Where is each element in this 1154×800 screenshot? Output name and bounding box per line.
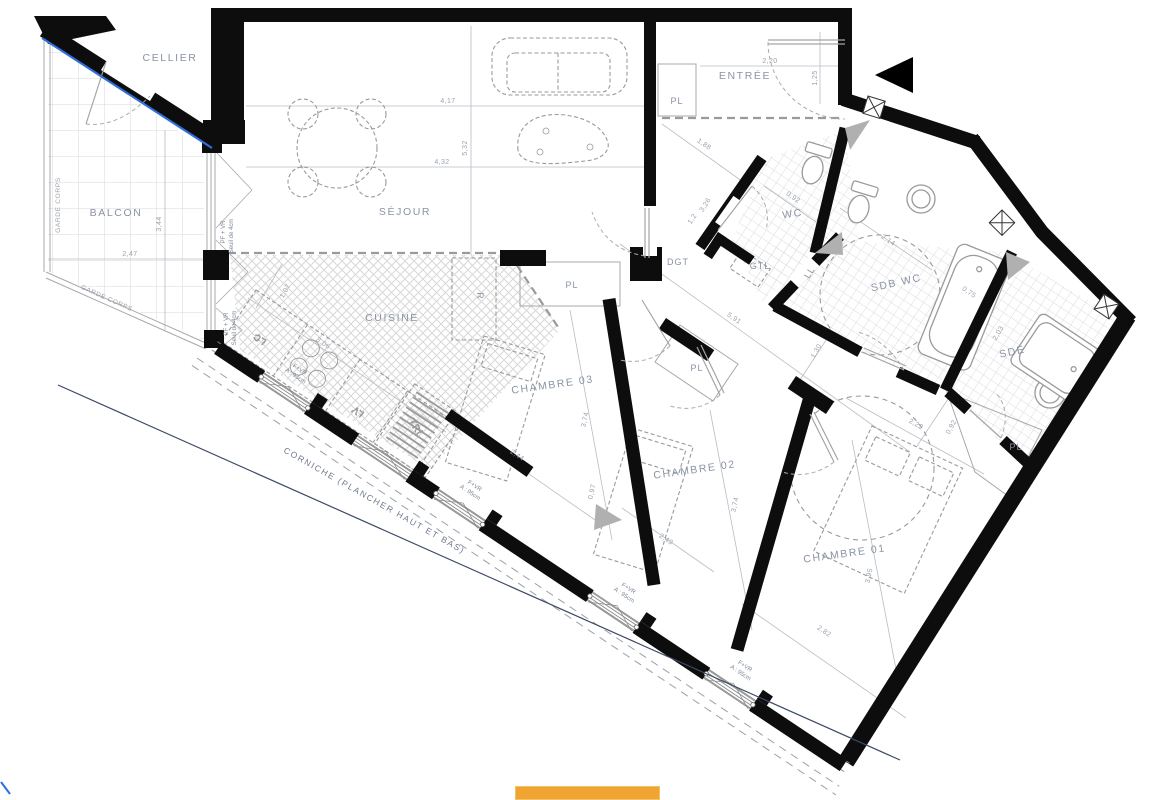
- dim-ch1-d: 2,22: [907, 418, 924, 432]
- room-label-dgt: DGT: [667, 257, 689, 267]
- room-label-cuisine: CUISINE: [365, 312, 419, 324]
- pfvr-label-1: PF + VR: [221, 220, 227, 244]
- room-label-cellier: CELLIER: [143, 52, 198, 64]
- garde-corps-left: GARDE CORPS: [55, 177, 62, 233]
- room-label-chambre-03: CHAMBRE 03: [511, 373, 595, 396]
- kitchen-tiling: [230, 255, 560, 470]
- dim-ch2-h: 3,74: [731, 497, 741, 513]
- closet-label-entree: PL: [670, 96, 683, 106]
- room-label-chambre-01: CHAMBRE 01: [803, 542, 887, 565]
- dim-ch1-w: 2,82: [816, 625, 833, 639]
- dim-wc-d2: 3,26: [699, 197, 713, 214]
- room-label-gtl: GTL: [750, 261, 771, 271]
- dining-table: [297, 108, 377, 188]
- dim-ch2-w: 2,49: [658, 533, 675, 547]
- dim-entree-h: 1,25: [812, 70, 819, 85]
- closet-label-chambre-03: PL: [690, 363, 703, 373]
- dim-entree-w: 2,20: [762, 58, 777, 65]
- floor-plan-drawing: LC LV TRI: [0, 0, 1154, 800]
- dim-balcon-w: 2,47: [122, 251, 137, 258]
- seuil-label-1: Seuil de 4cm: [229, 219, 235, 254]
- dim-balcon-h: 3,44: [156, 216, 163, 231]
- dim-sejour-w1: 4,17: [440, 98, 455, 105]
- coffee-table: [518, 114, 608, 163]
- closet-label-sde: PL: [1009, 442, 1022, 452]
- dim-sejour-h: 5,32: [462, 140, 469, 155]
- appliance-label-fridge: R: [475, 292, 485, 300]
- orange-marker: [515, 786, 660, 800]
- direction-arrow-icon: [875, 57, 913, 93]
- dim-ch3-d: 0,97: [588, 484, 598, 500]
- dim-dgt-w: 1,30: [810, 343, 824, 360]
- seuil-label-2: Seuil de 4cm: [232, 311, 238, 346]
- room-label-balcon: BALCON: [90, 207, 143, 219]
- dim-sde-w: 0,92: [945, 419, 959, 436]
- legend-swatch-cropped: [1, 782, 10, 794]
- room-label-chambre-02: CHAMBRE 02: [653, 458, 737, 481]
- dim-dgt-len: 5,91: [726, 312, 743, 326]
- dim-ch3-h: 3,74: [581, 412, 591, 428]
- pfvr-label-2: PF + VR: [224, 312, 230, 336]
- closet-label-sejour: PL: [565, 280, 578, 290]
- floor-plan-page: LC LV TRI: [0, 0, 1154, 800]
- bed-chambre-01: [814, 426, 963, 593]
- dim-sejour-w2: 4,32: [434, 159, 449, 166]
- room-label-sejour: SÉJOUR: [379, 205, 431, 218]
- dim-wc-d1: 1,2: [687, 213, 699, 226]
- dim-ch1-h: 3,95: [865, 568, 875, 584]
- sofa: [492, 38, 627, 95]
- room-label-entree: ENTRÉE: [719, 69, 771, 82]
